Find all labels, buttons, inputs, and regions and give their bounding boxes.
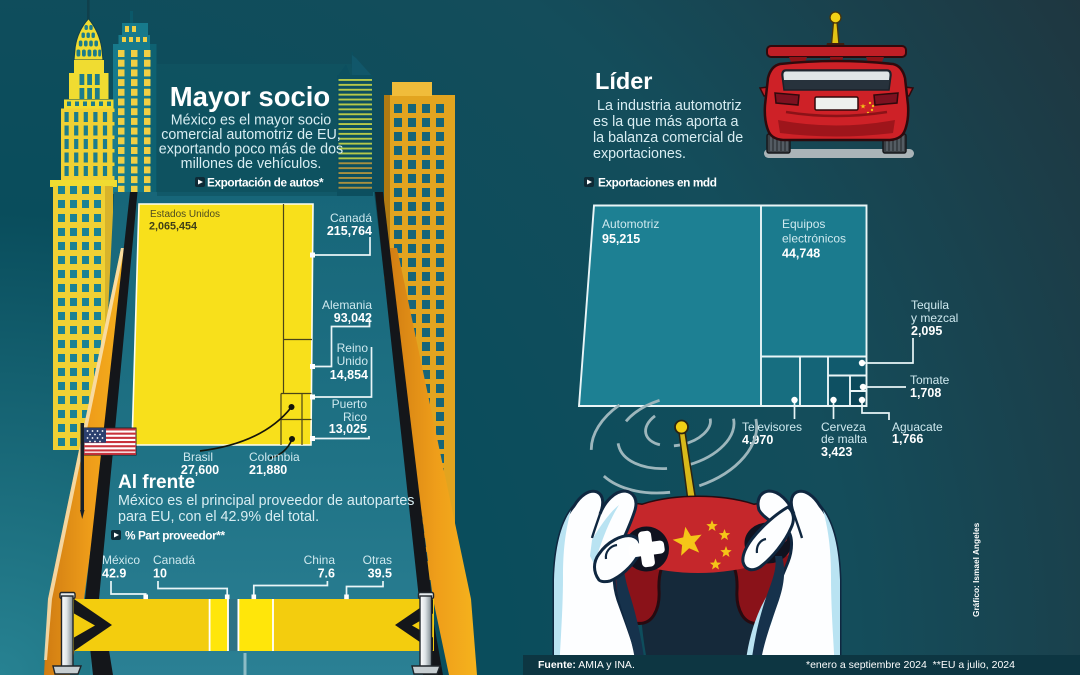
svg-text:es la que más aporta a: es la que más aporta a [593, 114, 738, 130]
svg-text:39.5: 39.5 [368, 567, 392, 581]
svg-text:*enero a septiembre 2024 **EU: *enero a septiembre 2024 **EU a julio, 2… [806, 659, 1015, 671]
svg-text:2,095: 2,095 [911, 324, 942, 338]
svg-text:Equipos: Equipos [782, 217, 825, 231]
svg-text:Fuente: AMIA y INA.: Fuente: AMIA y INA. [538, 659, 635, 671]
svg-text:Otras: Otras [363, 553, 392, 567]
svg-text:10: 10 [153, 567, 167, 581]
svg-text:3,423: 3,423 [821, 445, 852, 459]
svg-text:exportaciones.: exportaciones. [593, 146, 686, 162]
svg-text:Exportaciones en mdd: Exportaciones en mdd [598, 176, 717, 190]
svg-text:1,708: 1,708 [910, 386, 941, 400]
svg-text:215,764: 215,764 [327, 224, 372, 238]
svg-text:electrónicos: electrónicos [782, 232, 846, 246]
svg-text:Estados Unidos: Estados Unidos [150, 209, 220, 220]
svg-text:de malta: de malta [821, 432, 867, 446]
svg-text:Tomate: Tomate [910, 373, 950, 387]
svg-text:44,748: 44,748 [782, 247, 820, 261]
svg-text:93,042: 93,042 [334, 311, 372, 325]
svg-text:Canadá: Canadá [330, 211, 372, 225]
svg-text:% Part proveedor**: % Part proveedor** [125, 529, 225, 543]
svg-text:para EU, con el 42.9% del tota: para EU, con el 42.9% del total. [118, 509, 319, 525]
svg-text:Al frente: Al frente [118, 472, 195, 493]
svg-text:95,215: 95,215 [602, 232, 640, 246]
svg-text:Unido: Unido [337, 354, 369, 368]
svg-text:China: China [304, 553, 336, 567]
svg-text:La industria automotriz: La industria automotriz [597, 98, 742, 114]
svg-text:Gráfico: Ismael Angeles: Gráfico: Ismael Angeles [971, 522, 981, 617]
svg-text:millones de vehículos.: millones de vehículos. [181, 156, 322, 172]
svg-text:México: México [102, 553, 140, 567]
svg-text:y mezcal: y mezcal [911, 311, 958, 325]
svg-text:14,854: 14,854 [330, 368, 368, 382]
svg-text:1,766: 1,766 [892, 432, 923, 446]
svg-text:la balanza comercial de: la balanza comercial de [593, 130, 743, 146]
svg-text:México es el principal proveed: México es el principal proveedor de auto… [118, 493, 414, 509]
svg-text:Puerto: Puerto [332, 397, 368, 411]
svg-text:Líder: Líder [595, 68, 652, 94]
svg-text:Canadá: Canadá [153, 553, 195, 567]
svg-text:Televisores: Televisores [742, 420, 802, 434]
svg-text:21,880: 21,880 [249, 463, 287, 477]
svg-text:7.6: 7.6 [318, 567, 335, 581]
svg-text:Reino: Reino [337, 341, 369, 355]
svg-text:42.9: 42.9 [102, 567, 126, 581]
svg-text:Automotriz: Automotriz [602, 217, 659, 231]
svg-text:Colombia: Colombia [249, 450, 300, 464]
svg-text:4,970: 4,970 [742, 433, 773, 447]
svg-text:2,065,454: 2,065,454 [149, 221, 197, 233]
svg-text:Mayor socio: Mayor socio [170, 81, 330, 112]
svg-text:Exportación de autos*: Exportación de autos* [207, 176, 324, 190]
svg-text:Brasil: Brasil [183, 450, 213, 464]
svg-text:Alemania: Alemania [322, 298, 372, 312]
svg-text:Tequila: Tequila [911, 298, 949, 312]
svg-text:13,025: 13,025 [329, 422, 367, 436]
